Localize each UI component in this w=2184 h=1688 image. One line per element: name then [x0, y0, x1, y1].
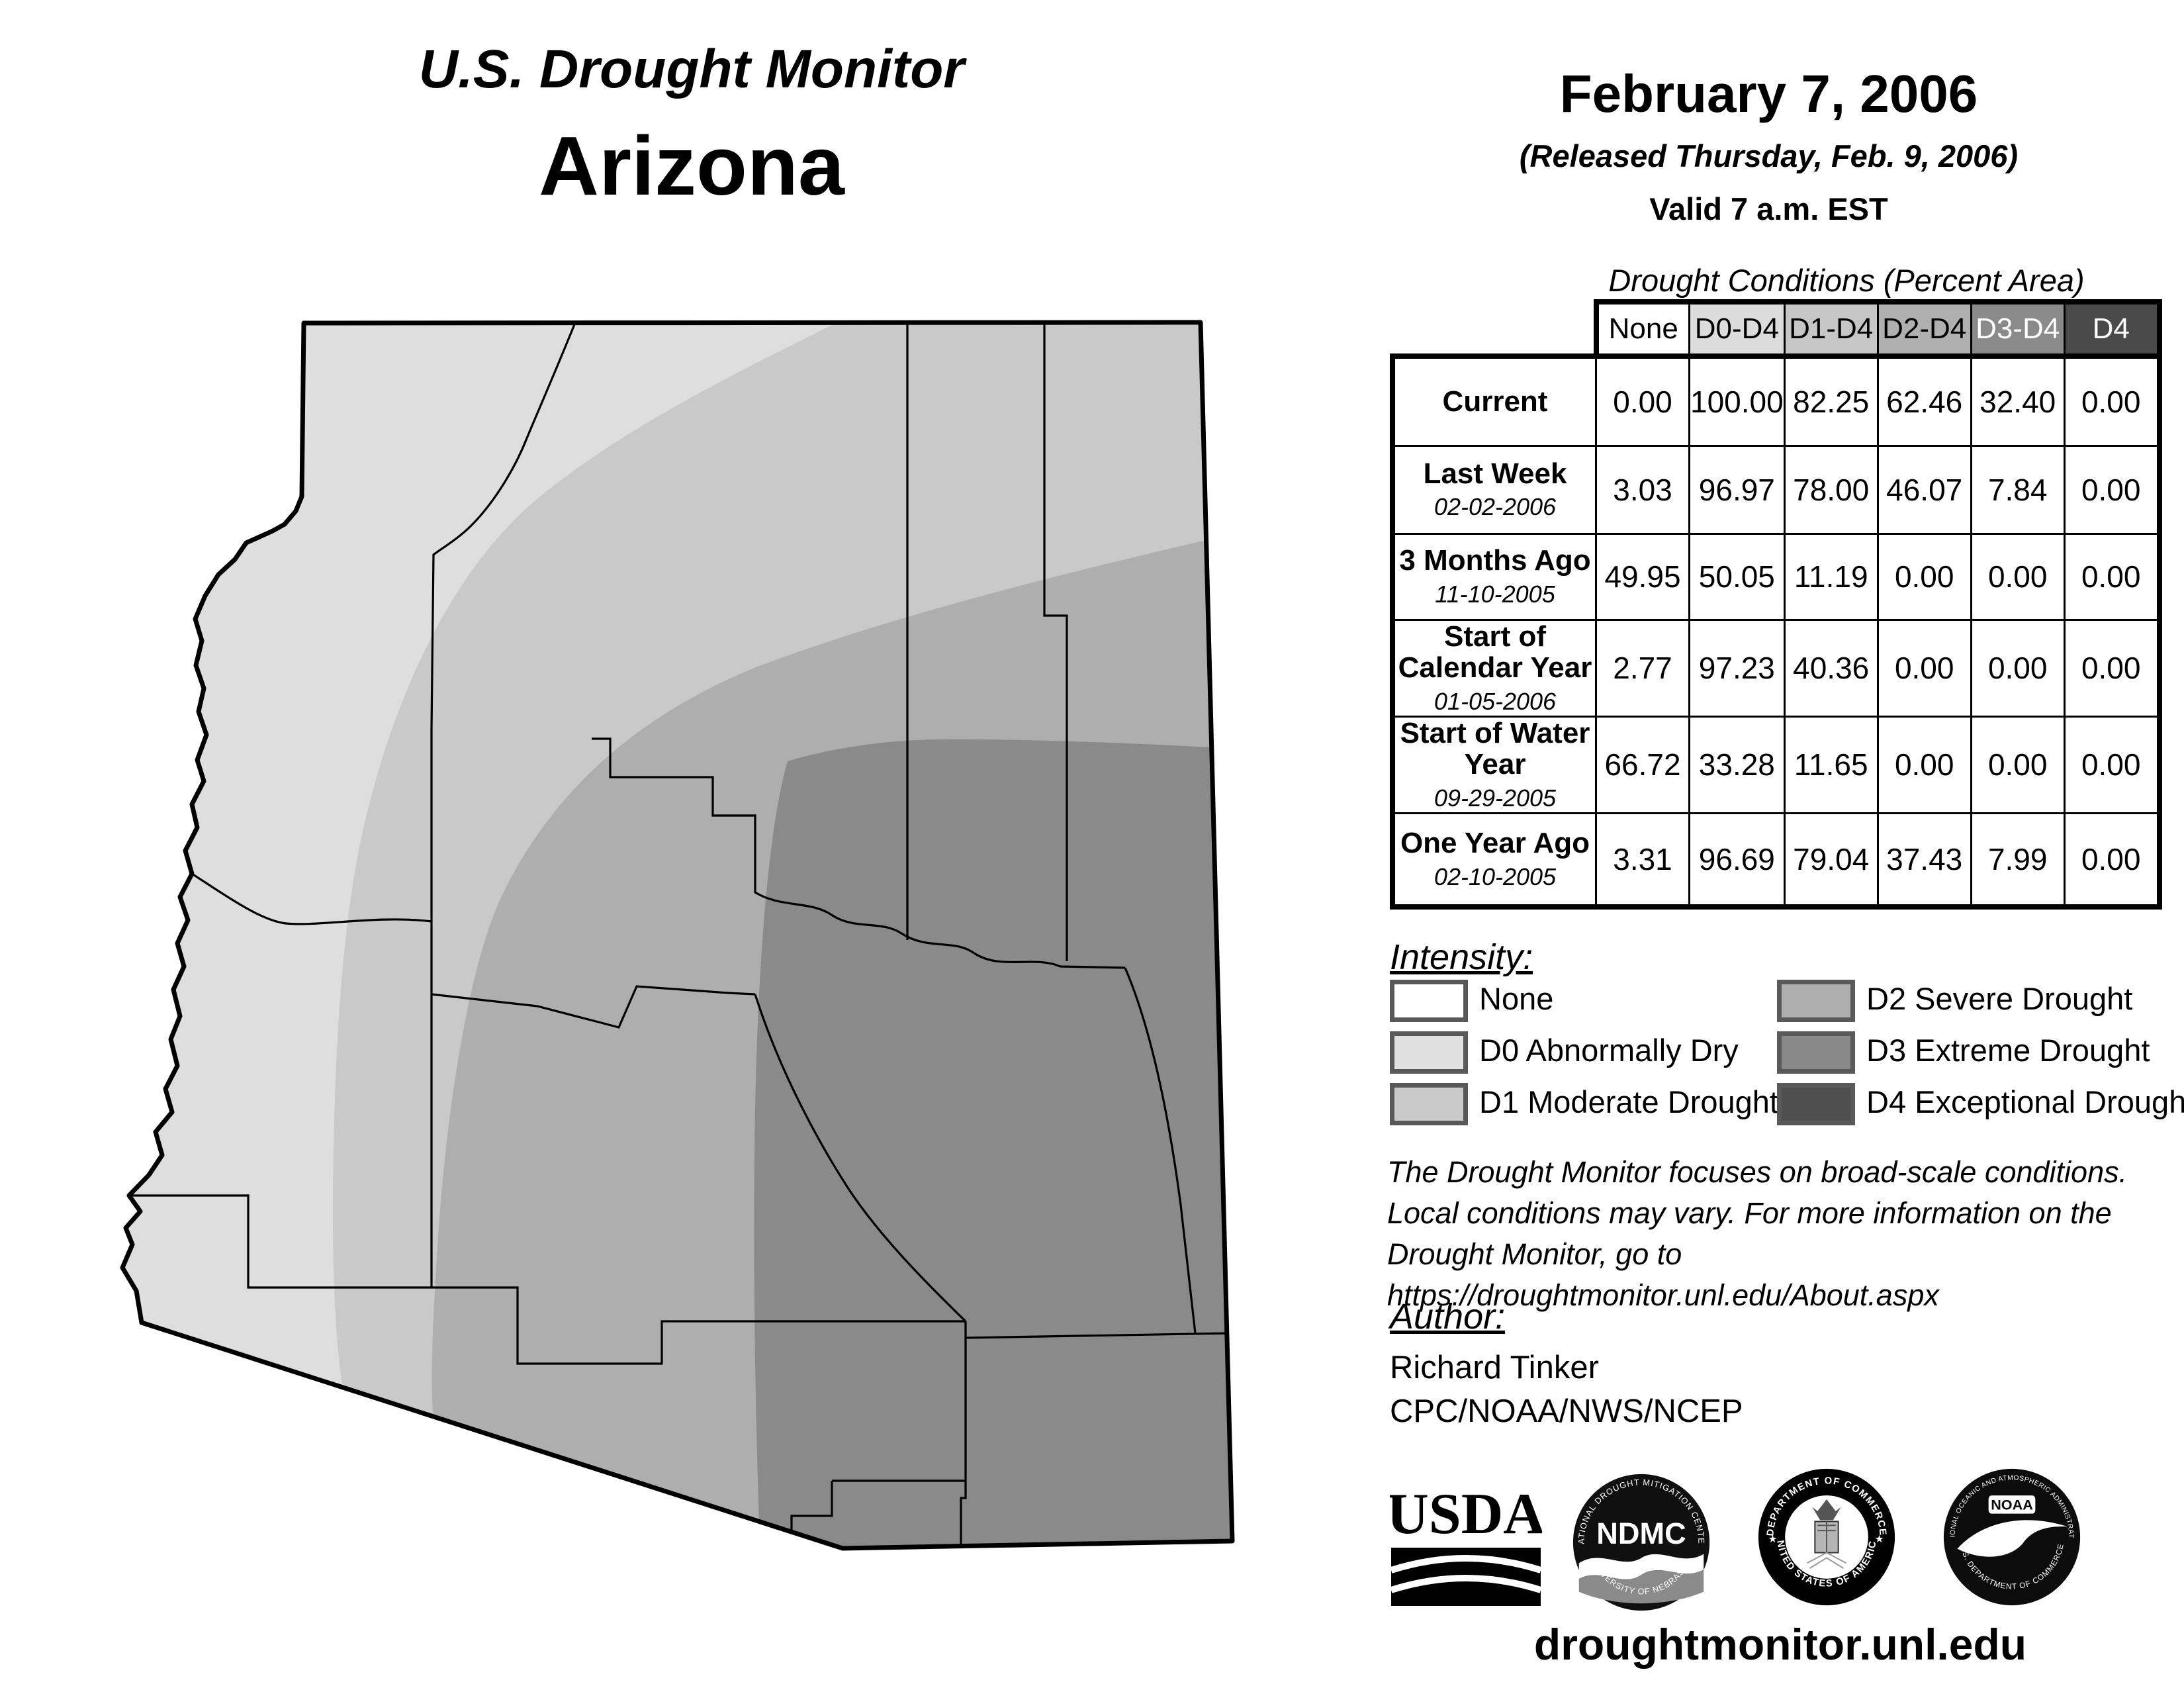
author-name: Richard Tinker — [1390, 1349, 1599, 1386]
cell-value: 0.00 — [2064, 620, 2160, 716]
cell-value: 7.84 — [1971, 445, 2064, 534]
row-label: One Year Ago — [1395, 827, 1595, 859]
legend-swatch-d2 — [1777, 980, 1855, 1022]
legend-label: D0 Abnormally Dry — [1479, 1031, 1739, 1070]
legend-swatch-d4 — [1777, 1083, 1855, 1125]
legend-swatch-d3 — [1777, 1031, 1855, 1074]
col-none: None — [1596, 302, 1690, 356]
cell-value: 11.19 — [1784, 534, 1878, 620]
cell-value: 46.07 — [1878, 445, 1971, 534]
cell-value: 97.23 — [1690, 620, 1785, 716]
cell-value: 0.00 — [2064, 716, 2160, 813]
ndmc-logo-text: NDMC — [1596, 1517, 1686, 1550]
table-row: Current 0.00 100.00 82.25 62.46 32.40 0.… — [1392, 356, 2160, 445]
legend-label: D1 Moderate Drought — [1479, 1083, 1778, 1121]
cell-value: 78.00 — [1784, 445, 1878, 534]
cell-value: 0.00 — [2064, 445, 2160, 534]
cell-value: 3.03 — [1596, 445, 1690, 534]
col-d1-d4: D1-D4 — [1784, 302, 1878, 356]
map-date: February 7, 2006 — [1390, 64, 2148, 124]
legend-title: Intensity: — [1390, 937, 1533, 978]
note-line: The Drought Monitor focuses on broad-sca… — [1387, 1152, 2168, 1193]
cell-value: 66.72 — [1596, 716, 1690, 813]
noaa-logo-text: NOAA — [1991, 1497, 2033, 1513]
noaa-logo: NOAA NATIONAL OCEANIC AND ATMOSPHERIC AD… — [1940, 1466, 2083, 1609]
svg-text:★: ★ — [1768, 1534, 1778, 1545]
cell-value: 0.00 — [1878, 620, 1971, 716]
cell-value: 40.36 — [1784, 620, 1878, 716]
cell-value: 0.00 — [1878, 534, 1971, 620]
row-label: Current — [1395, 386, 1595, 418]
table-corner-cell — [1392, 302, 1596, 356]
note-line: Local conditions may vary. For more info… — [1387, 1193, 2168, 1234]
ndmc-logo: NDMC NATIONAL DROUGHT MITIGATION CENTER … — [1570, 1471, 1713, 1614]
cell-value: 82.25 — [1784, 356, 1878, 445]
table-row: Start of Water Year 09-29-2005 66.72 33.… — [1392, 716, 2160, 813]
drought-monitor-page: U.S. Drought Monitor Arizona February 7,… — [0, 0, 2184, 1688]
released-date: (Released Thursday, Feb. 9, 2006) — [1390, 138, 2148, 174]
legend-swatch-d0 — [1390, 1031, 1468, 1074]
cell-value: 79.04 — [1784, 813, 1878, 907]
row-label: Last Week — [1395, 458, 1595, 490]
col-d3-d4: D3-D4 — [1971, 302, 2064, 356]
table-row: 3 Months Ago 11-10-2005 49.95 50.05 11.1… — [1392, 534, 2160, 620]
table-row: One Year Ago 02-10-2005 3.31 96.69 79.04… — [1392, 813, 2160, 907]
svg-text:★: ★ — [1875, 1534, 1884, 1545]
row-date: 02-10-2005 — [1395, 863, 1595, 891]
table-header-row: None D0-D4 D1-D4 D2-D4 D3-D4 D4 — [1392, 302, 2160, 356]
row-date: 02-02-2006 — [1395, 493, 1595, 521]
cell-value: 96.69 — [1690, 813, 1785, 907]
cell-value: 96.97 — [1690, 445, 1785, 534]
cell-value: 62.46 — [1878, 356, 1971, 445]
col-d2-d4: D2-D4 — [1878, 302, 1971, 356]
legend-label: D2 Severe Drought — [1866, 980, 2132, 1018]
row-label: Start of Calendar Year — [1395, 621, 1595, 684]
legend-swatch-none — [1390, 980, 1468, 1022]
cell-value: 33.28 — [1690, 716, 1785, 813]
cell-value: 0.00 — [2064, 534, 2160, 620]
cell-value: 0.00 — [1878, 716, 1971, 813]
d3-region — [754, 739, 1232, 1548]
cell-value: 32.40 — [1971, 356, 2064, 445]
department-of-commerce-seal: DEPARTMENT OF COMMERCE UNITED STATES OF … — [1755, 1466, 1898, 1609]
cell-value: 0.00 — [2064, 356, 2160, 445]
row-date: 01-05-2006 — [1395, 688, 1595, 716]
cell-value: 0.00 — [1971, 534, 2064, 620]
legend-label: D3 Extreme Drought — [1866, 1031, 2150, 1070]
table-caption: Drought Conditions (Percent Area) — [1549, 262, 2144, 299]
footer-url: droughtmonitor.unl.edu — [1416, 1619, 2144, 1669]
col-d4: D4 — [2064, 302, 2160, 356]
row-date: 09-29-2005 — [1395, 784, 1595, 812]
usda-logo-text: USDA — [1390, 1483, 1542, 1546]
author-heading: Author: — [1390, 1296, 1505, 1337]
cell-value: 3.31 — [1596, 813, 1690, 907]
table-row: Start of Calendar Year 01-05-2006 2.77 9… — [1392, 620, 2160, 716]
valid-time: Valid 7 a.m. EST — [1390, 191, 2148, 227]
cell-value: 100.00 — [1690, 356, 1785, 445]
legend-label: D4 Exceptional Drought — [1866, 1083, 2184, 1121]
cell-value: 0.00 — [1971, 620, 2064, 716]
cell-value: 0.00 — [2064, 813, 2160, 907]
legend-swatch-d1 — [1390, 1083, 1468, 1125]
cell-value: 7.99 — [1971, 813, 2064, 907]
cell-value: 0.00 — [1596, 356, 1690, 445]
cell-value: 0.00 — [1971, 716, 2064, 813]
table-row: Last Week 02-02-2006 3.03 96.97 78.00 46… — [1392, 445, 2160, 534]
disclaimer-note: The Drought Monitor focuses on broad-sca… — [1387, 1152, 2168, 1316]
row-label: Start of Water Year — [1395, 718, 1595, 780]
cell-value: 2.77 — [1596, 620, 1690, 716]
row-date: 11-10-2005 — [1395, 581, 1595, 608]
cell-value: 49.95 — [1596, 534, 1690, 620]
author-org: CPC/NOAA/NWS/NCEP — [1390, 1393, 1743, 1430]
legend-label: None — [1479, 980, 1553, 1018]
row-label: 3 Months Ago — [1395, 545, 1595, 577]
cell-value: 37.43 — [1878, 813, 1971, 907]
cell-value: 11.65 — [1784, 716, 1878, 813]
drought-conditions-table: None D0-D4 D1-D4 D2-D4 D3-D4 D4 Current … — [1390, 299, 2162, 910]
cell-value: 50.05 — [1690, 534, 1785, 620]
usda-logo: USDA — [1390, 1483, 1542, 1609]
arizona-drought-map — [0, 0, 1324, 1688]
col-d0-d4: D0-D4 — [1690, 302, 1785, 356]
